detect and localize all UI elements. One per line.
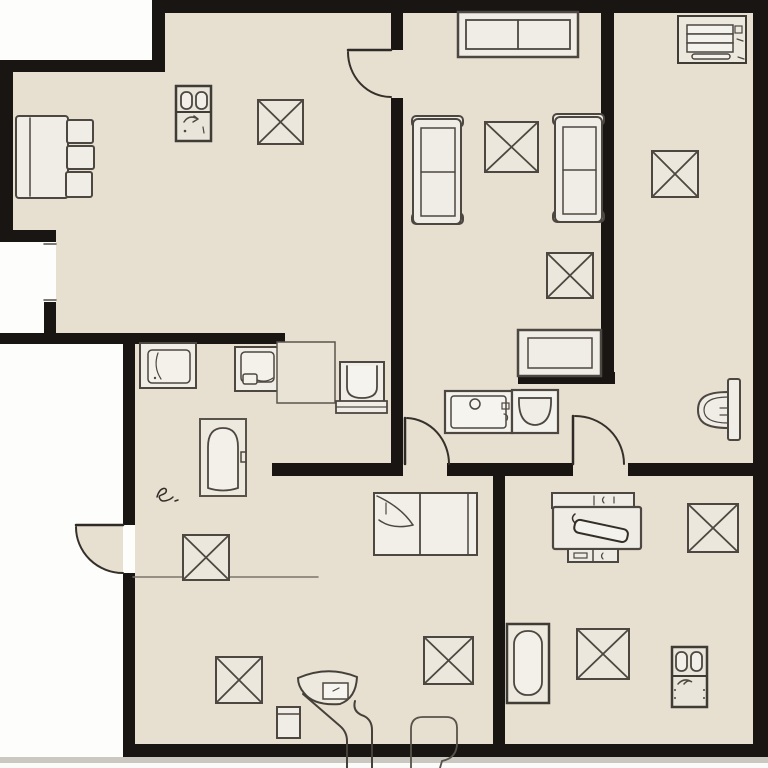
radiator-handle (692, 54, 730, 59)
stove-topleft-burner (196, 92, 207, 109)
bathtub-left-tub (208, 428, 238, 491)
toilet-mid-bowl (347, 366, 377, 398)
tv-cabinet-outline (518, 330, 601, 376)
stove-right-burner (676, 652, 687, 671)
bottom-white-edge (0, 763, 768, 768)
bottom-band (0, 757, 768, 763)
pedestal-toilet-cistern (323, 683, 348, 699)
shower-closet-outline (277, 342, 335, 403)
stove-right-dot (703, 697, 705, 699)
stove-topleft-burner (181, 92, 192, 109)
wall-left-upper (0, 60, 13, 242)
radiator-fin (687, 25, 733, 34)
wall-left-lower-a (123, 344, 135, 525)
washbasin-soap (243, 374, 257, 384)
bathtub-right-tub (514, 631, 542, 695)
wall-topleft-vertical (152, 0, 165, 72)
sofa-topleft-body (16, 116, 68, 198)
floor-plan-canvas (0, 0, 768, 768)
wall-d-middle (447, 463, 573, 476)
wall-left-lower-b (123, 573, 135, 748)
sofa-topleft-cushion (67, 146, 94, 169)
wall-d-left (272, 463, 403, 476)
wall-right (753, 0, 768, 757)
stove-right-dot (674, 697, 676, 699)
radiator-fin (687, 34, 733, 43)
stove-right-burner (691, 652, 702, 671)
sofa-topleft-cushion (67, 120, 93, 143)
wall-d-right (628, 463, 755, 476)
wall-a-main (391, 98, 403, 468)
vanity-sink-drain (154, 377, 156, 379)
desk-shelf (552, 493, 634, 508)
wall-a-top (391, 0, 403, 50)
wall-bottom (123, 744, 768, 757)
toilet-right-tank (728, 379, 740, 440)
wall-e-vertical (493, 466, 505, 747)
wall-cabinet-small (277, 707, 300, 738)
sofa-topleft-cushion (66, 172, 92, 197)
floor-plan (0, 0, 768, 768)
wall-topleft-horizontal (0, 60, 165, 72)
radiator-fin (687, 43, 733, 52)
stove-topleft-dot (184, 130, 187, 133)
window-left (44, 242, 56, 302)
wall-left-jog (0, 230, 56, 242)
stove-right-dot (674, 689, 676, 691)
round-basin-bowl (519, 398, 551, 425)
stove-right-dot (703, 689, 705, 691)
